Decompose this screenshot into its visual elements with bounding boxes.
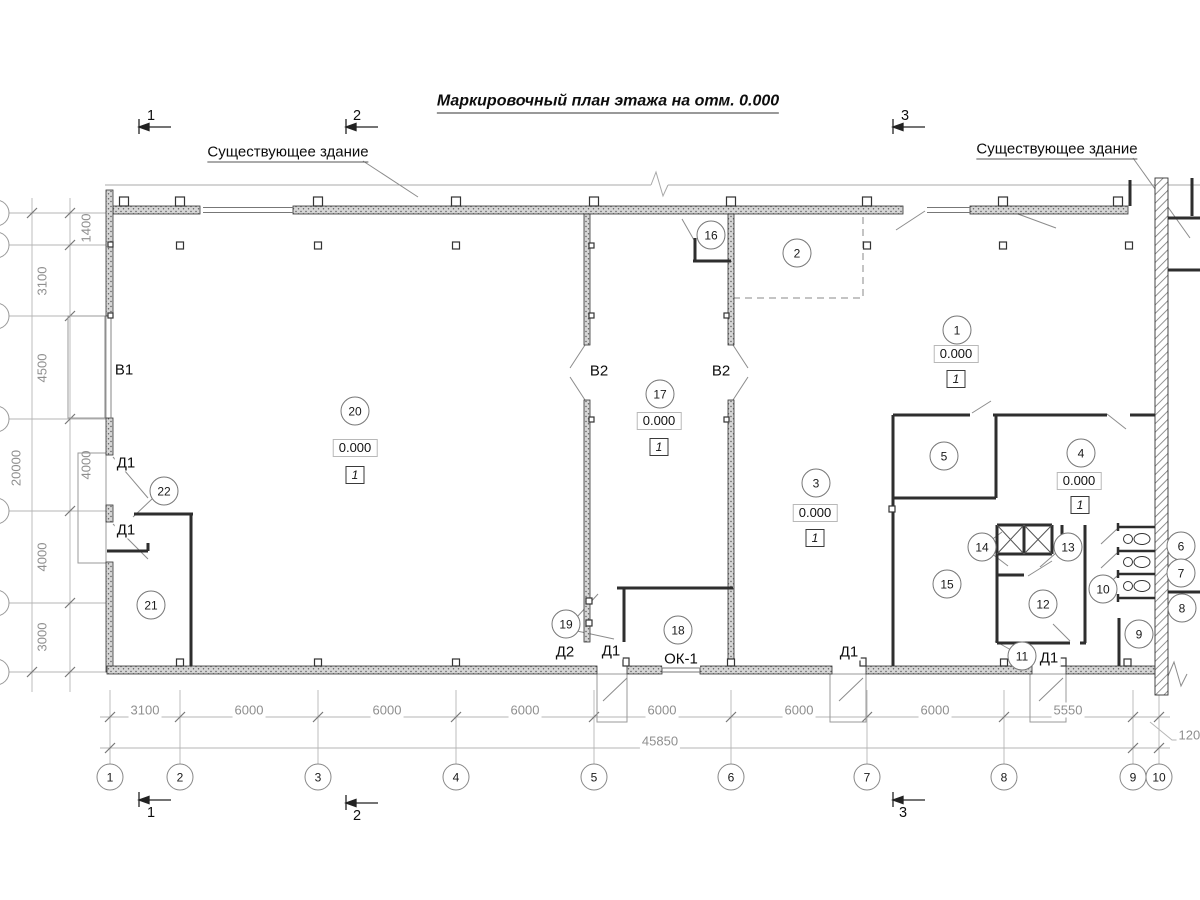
dim-total-label: 45850 — [640, 734, 680, 749]
dim-label: 1400 — [79, 214, 94, 243]
grid-bubble-10: 10 — [1146, 764, 1173, 791]
dim-label: 6000 — [919, 703, 952, 718]
room-marker-1: 1 — [943, 316, 972, 345]
room-marker-11: 11 — [1008, 642, 1037, 671]
grid-bubble-3: 3 — [305, 764, 332, 791]
opening-label-В2: В2 — [588, 363, 610, 380]
room-marker-17: 17 — [646, 380, 675, 409]
type-mark: 1 — [947, 370, 966, 388]
opening-label-ОК-1: ОК-1 — [662, 651, 700, 668]
dimension-grid — [8, 198, 1200, 764]
opening-label-Д2: Д2 — [554, 644, 577, 661]
opening-label-В2: В2 — [710, 363, 732, 380]
section-marker-top-2: 2 — [353, 108, 361, 124]
dim-label: 4000 — [79, 451, 94, 480]
room-marker-10: 10 — [1089, 575, 1118, 604]
left-grid-bubbles — [0, 200, 9, 685]
room-marker-14: 14 — [968, 533, 997, 562]
opening-label-Д1: Д1 — [838, 644, 861, 661]
elevation-mark: 0.000 — [637, 412, 682, 430]
opening-label-Д1: Д1 — [115, 455, 138, 472]
dim-label: 3100 — [35, 267, 50, 296]
section-marker-bottom-3: 3 — [899, 805, 907, 821]
dim-label: 3000 — [35, 623, 50, 652]
room-marker-7: 7 — [1167, 559, 1196, 588]
grid-bubble-4: 4 — [443, 764, 470, 791]
grid-bubble-1: 1 — [97, 764, 124, 791]
toilet-fixtures — [1124, 534, 1151, 592]
room-marker-18: 18 — [664, 616, 693, 645]
drawing-title: Маркировочный план этажа на отм. 0.000 — [437, 93, 779, 114]
room-marker-5: 5 — [930, 442, 959, 471]
dim-label: 6000 — [783, 703, 816, 718]
room-marker-4: 4 — [1067, 439, 1096, 468]
grid-bubble-5: 5 — [581, 764, 608, 791]
room-marker-8: 8 — [1168, 594, 1197, 623]
elevation-mark: 0.000 — [793, 504, 838, 522]
room-marker-6: 6 — [1167, 532, 1196, 561]
section-marker-bottom-1: 1 — [147, 805, 155, 821]
dim-label: 4000 — [35, 543, 50, 572]
elevation-mark: 0.000 — [934, 345, 979, 363]
existing-building-wall — [1155, 178, 1168, 695]
room-marker-3: 3 — [802, 469, 831, 498]
type-mark: 1 — [650, 438, 669, 456]
room-marker-15: 15 — [933, 570, 962, 599]
grid-bubble-7: 7 — [854, 764, 881, 791]
section-marker-top-1: 1 — [147, 108, 155, 124]
porches-and-gates — [68, 316, 1066, 722]
elevation-mark: 0.000 — [1057, 472, 1102, 490]
existing-building-label-left: Существующее здание — [207, 144, 368, 163]
existing-building-label-right: Существующее здание — [976, 141, 1137, 160]
dim-label: 5550 — [1052, 703, 1085, 718]
reference-lines — [105, 172, 1200, 196]
room-marker-12: 12 — [1029, 590, 1058, 619]
dim-label: 6000 — [509, 703, 542, 718]
room-marker-21: 21 — [137, 591, 166, 620]
columns — [108, 197, 1133, 666]
dim-label: 3100 — [129, 703, 162, 718]
grid-bubble-2: 2 — [167, 764, 194, 791]
grid-bubble-8: 8 — [991, 764, 1018, 791]
window-lines — [105, 208, 970, 673]
grid-bubble-6: 6 — [718, 764, 745, 791]
room-marker-2: 2 — [783, 239, 812, 268]
type-mark: 1 — [1071, 496, 1090, 514]
type-mark: 1 — [806, 529, 825, 547]
grid-bubble-9: 9 — [1120, 764, 1147, 791]
room-marker-13: 13 — [1054, 533, 1083, 562]
dim-label: 1200 — [1177, 728, 1200, 743]
dim-label: 6000 — [646, 703, 679, 718]
opening-label-Д1: Д1 — [1038, 650, 1061, 667]
dim-label: 20000 — [9, 450, 24, 486]
elevation-mark: 0.000 — [333, 439, 378, 457]
section-marker-top-3: 3 — [901, 108, 909, 124]
floor-plan-sheet: Маркировочный план этажа на отм. 0.000 С… — [0, 0, 1200, 900]
opening-label-Д1: Д1 — [600, 643, 623, 660]
dim-label: 6000 — [233, 703, 266, 718]
section-marker-bottom-2: 2 — [353, 808, 361, 824]
opening-label-Д1: Д1 — [115, 522, 138, 539]
room-marker-20: 20 — [341, 397, 370, 426]
room-marker-9: 9 — [1125, 620, 1154, 649]
dim-label: 4500 — [35, 354, 50, 383]
type-mark: 1 — [346, 466, 365, 484]
room-marker-16: 16 — [697, 221, 726, 250]
room-marker-22: 22 — [150, 477, 179, 506]
room-marker-19: 19 — [552, 610, 581, 639]
dim-label: 6000 — [371, 703, 404, 718]
opening-label-В1: В1 — [113, 362, 135, 379]
